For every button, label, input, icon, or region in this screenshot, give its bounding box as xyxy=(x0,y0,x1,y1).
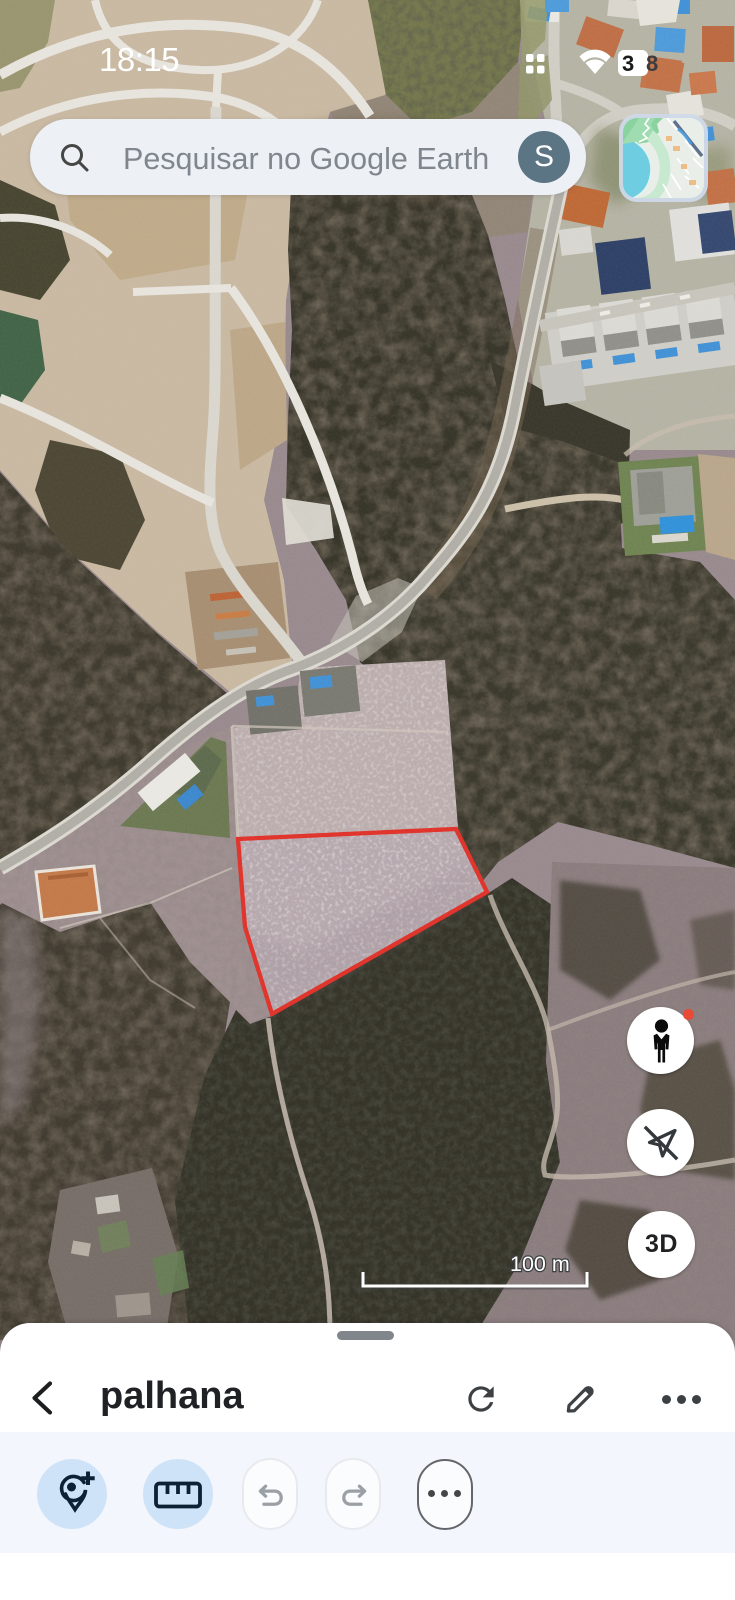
svg-text:100 m: 100 m xyxy=(510,1252,570,1276)
